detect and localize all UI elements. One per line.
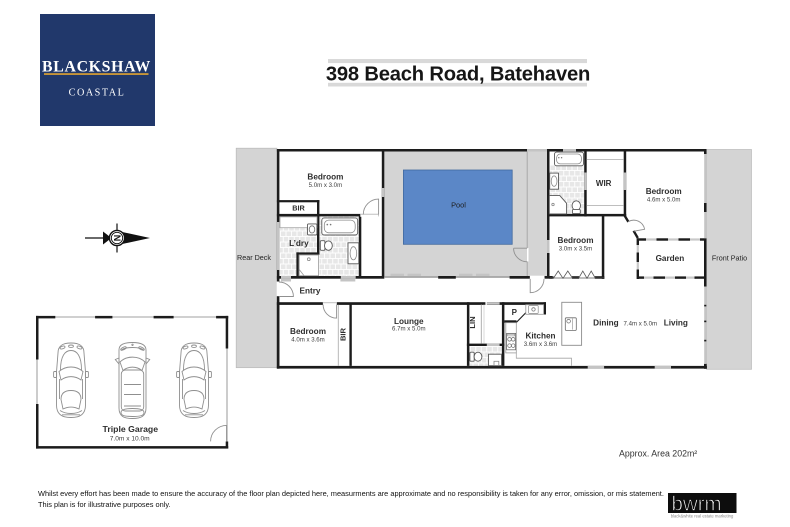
svg-text:7.0m x 10.0m: 7.0m x 10.0m bbox=[110, 435, 150, 442]
svg-text:Bedroom: Bedroom bbox=[646, 187, 682, 196]
svg-text:398 Beach Road, Batehaven: 398 Beach Road, Batehaven bbox=[326, 64, 590, 86]
svg-text:Living: Living bbox=[664, 318, 688, 327]
svg-text:5.0m x 3.0m: 5.0m x 3.0m bbox=[309, 182, 343, 189]
svg-text:4.6m x 5.0m: 4.6m x 5.0m bbox=[647, 197, 681, 204]
svg-text:BIR: BIR bbox=[338, 327, 347, 341]
svg-text:Triple Garage: Triple Garage bbox=[103, 424, 159, 434]
svg-text:Front Patio: Front Patio bbox=[712, 254, 747, 263]
svg-text:WIR: WIR bbox=[596, 179, 612, 188]
svg-text:N: N bbox=[112, 235, 122, 242]
svg-text:Bedroom: Bedroom bbox=[290, 327, 326, 336]
svg-text:4.0m x 3.6m: 4.0m x 3.6m bbox=[291, 337, 325, 344]
svg-text:Dining: Dining bbox=[593, 318, 618, 327]
svg-text:Approx. Area 202m²: Approx. Area 202m² bbox=[619, 449, 697, 459]
svg-text:7.4m x 5.0m: 7.4m x 5.0m bbox=[624, 320, 658, 327]
svg-text:Pool: Pool bbox=[451, 200, 466, 209]
svg-text:COASTAL: COASTAL bbox=[69, 88, 126, 99]
svg-text:3.0m x 3.5m: 3.0m x 3.5m bbox=[559, 245, 593, 252]
svg-text:Kitchen: Kitchen bbox=[525, 331, 555, 340]
svg-text:Bedroom: Bedroom bbox=[558, 236, 594, 245]
svg-text:3.6m x 3.6m: 3.6m x 3.6m bbox=[524, 341, 558, 348]
svg-text:Bedroom: Bedroom bbox=[307, 172, 343, 181]
svg-text:This plan is for illustrative: This plan is for illustrative purposes o… bbox=[38, 500, 171, 509]
svg-text:Lounge: Lounge bbox=[394, 317, 424, 326]
svg-text:Rear Deck: Rear Deck bbox=[237, 253, 271, 262]
svg-text:BIR: BIR bbox=[292, 204, 305, 213]
svg-text:BLACKSHAW: BLACKSHAW bbox=[42, 59, 151, 76]
svg-text:6.7m x 5.0m: 6.7m x 5.0m bbox=[392, 326, 426, 333]
svg-text:LIN: LIN bbox=[468, 316, 477, 328]
svg-text:Entry: Entry bbox=[300, 287, 321, 296]
svg-text:Garden: Garden bbox=[656, 254, 685, 263]
svg-text:bwrm: bwrm bbox=[672, 493, 722, 516]
svg-text:P: P bbox=[512, 308, 518, 317]
svg-text:black&white real estate market: black&white real estate marketing bbox=[671, 514, 734, 519]
svg-text:Whilst every effort has been m: Whilst every effort has been made to ens… bbox=[38, 489, 664, 498]
svg-text:L’dry: L’dry bbox=[289, 239, 309, 248]
